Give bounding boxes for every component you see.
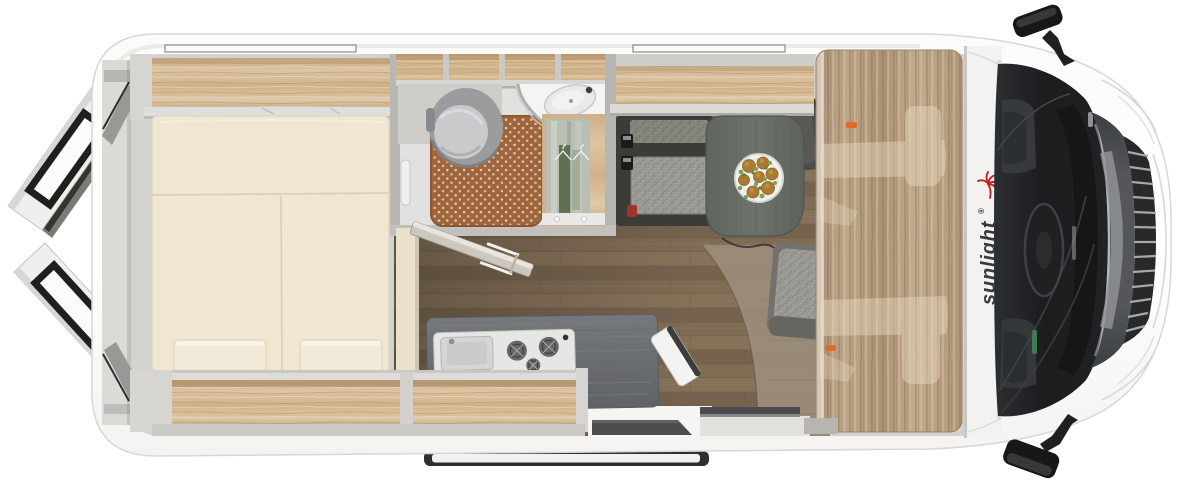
- svg-text:®: ®: [977, 208, 986, 214]
